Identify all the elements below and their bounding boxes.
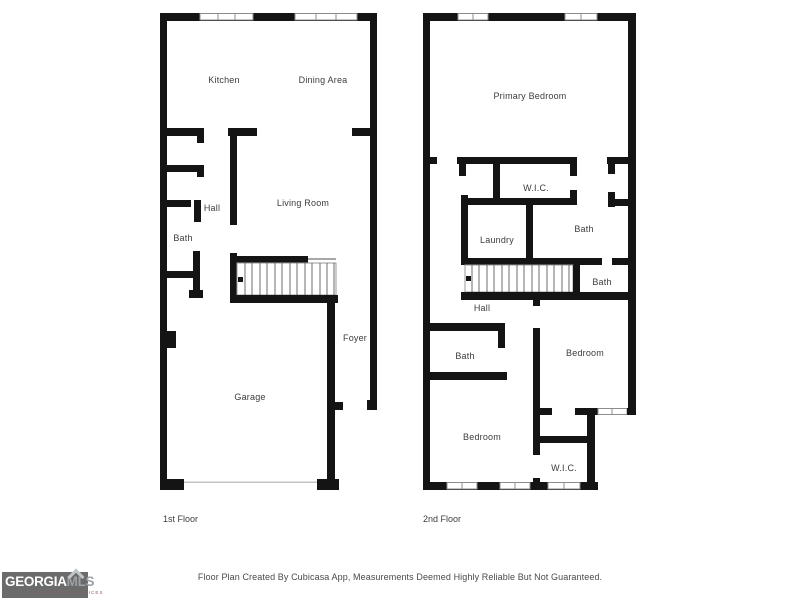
room-label-wic-lower: W.I.C.	[551, 463, 577, 473]
room-label-dining-area: Dining Area	[299, 75, 348, 85]
logo-wordmark: GEORGIAMLS	[5, 575, 94, 589]
room-label-bath-1: Bath	[173, 233, 192, 243]
floorplan-drawing	[0, 0, 800, 600]
room-label-bedroom-right: Bedroom	[566, 348, 604, 358]
floor-title-1st: 1st Floor	[163, 514, 198, 524]
room-label-bath-lower: Bath	[455, 351, 474, 361]
room-label-garage: Garage	[234, 392, 265, 402]
second-floor-walls	[423, 13, 636, 490]
room-label-foyer: Foyer	[343, 333, 367, 343]
room-label-living-room: Living Room	[277, 198, 329, 208]
room-label-bedroom-left: Bedroom	[463, 432, 501, 442]
room-label-bath-upper: Bath	[574, 224, 593, 234]
room-label-wic-upper: W.I.C.	[523, 183, 549, 193]
logo-brand-text: GEORGIA	[5, 574, 67, 589]
room-label-hall-2: Hall	[474, 303, 490, 313]
room-label-primary-bedroom: Primary Bedroom	[493, 91, 566, 101]
disclaimer-text: Floor Plan Created By Cubicasa App, Meas…	[0, 572, 800, 582]
floor-title-2nd: 2nd Floor	[423, 514, 461, 524]
room-label-laundry: Laundry	[480, 235, 514, 245]
floorplan-page: Kitchen Dining Area Living Room Hall Bat…	[0, 0, 800, 600]
georgia-mls-logo: GEORGIAMLS REAL ESTATE SERVICES	[2, 572, 88, 598]
room-label-bath-small: Bath	[592, 277, 611, 287]
logo-tagline-text: REAL ESTATE SERVICES	[28, 590, 104, 595]
room-label-kitchen: Kitchen	[208, 75, 239, 85]
room-label-hall-1: Hall	[204, 203, 220, 213]
